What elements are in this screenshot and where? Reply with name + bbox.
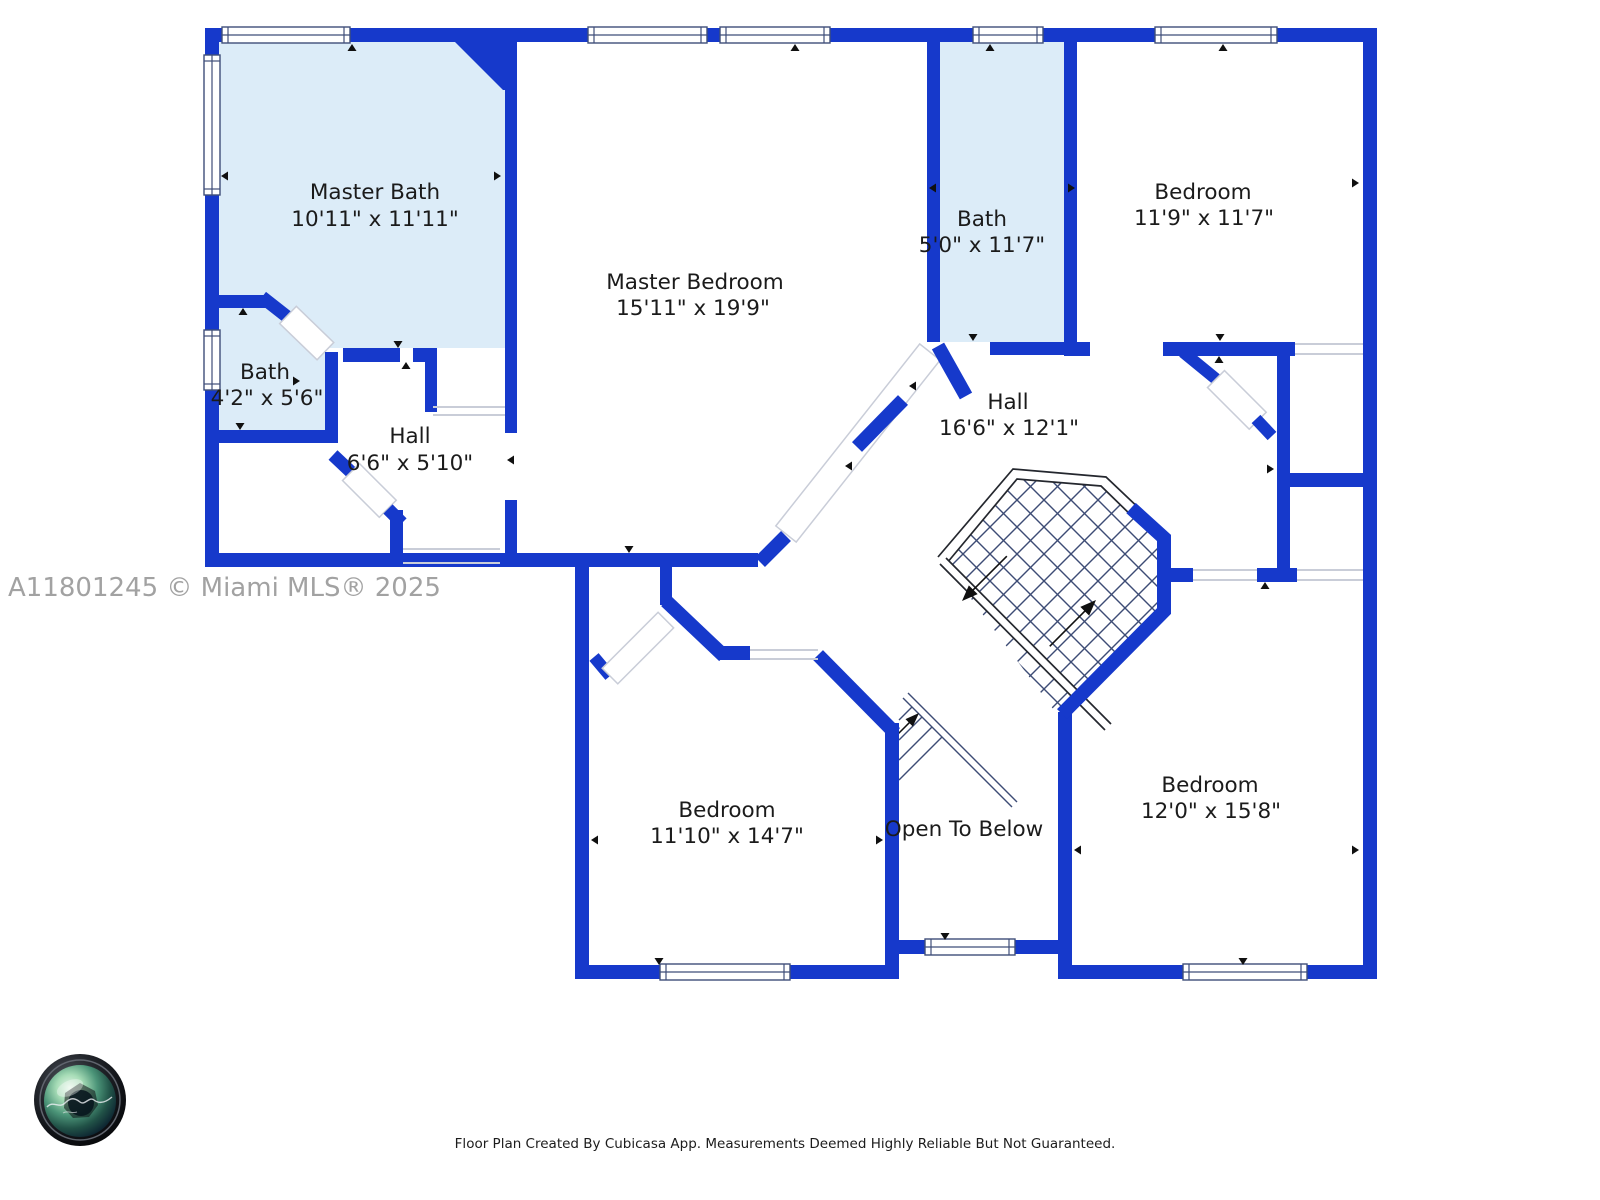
- room-label-bedroom-top-right: Bedroom: [1154, 180, 1251, 205]
- mls-watermark: A11801245 © Miami MLS® 2025: [8, 573, 441, 603]
- room-dims-bedroom-top-right: 11'9" x 11'7": [1134, 206, 1274, 231]
- photographer-logo: [34, 1054, 126, 1146]
- room-dims-bath-upper: 5'0" x 11'7": [919, 233, 1045, 258]
- window: [925, 939, 1015, 955]
- direction-marker: [1352, 846, 1359, 855]
- window: [204, 55, 220, 195]
- room-label-open-to-below: Open To Below: [885, 817, 1043, 842]
- direction-marker: [591, 836, 598, 845]
- direction-marker: [1215, 356, 1224, 363]
- direction-marker: [507, 456, 514, 465]
- window: [204, 330, 220, 390]
- room-dims-bedroom-bottom-left: 11'10" x 14'7": [650, 824, 804, 849]
- direction-marker: [1216, 334, 1225, 341]
- room-fill-bath-upper: [940, 42, 1064, 342]
- window: [1183, 964, 1307, 980]
- room-dims-hall-main: 16'6" x 12'1": [939, 416, 1079, 441]
- window: [720, 27, 830, 43]
- window: [588, 27, 707, 43]
- room-dims-bedroom-bottom-right: 12'0" x 15'8": [1141, 799, 1281, 824]
- stair-railing-outer: [938, 469, 1144, 557]
- direction-marker: [876, 836, 883, 845]
- window: [973, 27, 1043, 43]
- room-dims-master-bedroom: 15'11" x 19'9": [616, 296, 770, 321]
- room-label-master-bedroom: Master Bedroom: [606, 270, 784, 295]
- room-dims-bath-small: 4'2" x 5'6": [211, 386, 324, 411]
- direction-marker: [1074, 846, 1081, 855]
- room-label-hall-main: Hall: [987, 390, 1028, 415]
- footer-disclaimer: Floor Plan Created By Cubicasa App. Meas…: [455, 1136, 1116, 1152]
- direction-marker: [402, 362, 411, 369]
- floor-plan-canvas: Master Bath 10'11" x 11'11" Bath 4'2" x …: [0, 0, 1600, 1200]
- direction-marker: [625, 546, 634, 553]
- stair-flight-below: [899, 693, 1017, 807]
- window: [660, 964, 790, 980]
- direction-marker: [1352, 179, 1359, 188]
- room-label-bedroom-bottom-right: Bedroom: [1161, 773, 1258, 798]
- room-label-bedroom-bottom-left: Bedroom: [678, 798, 775, 823]
- room-label-bath-small: Bath: [240, 360, 290, 385]
- direction-marker: [1267, 465, 1274, 474]
- room-dims-master-bath: 10'11" x 11'11": [291, 207, 458, 232]
- direction-marker: [791, 44, 800, 51]
- direction-marker: [1261, 582, 1270, 589]
- window: [1155, 27, 1277, 43]
- room-label-hall-small: Hall: [389, 424, 430, 449]
- floor-plan-page: Master Bath 10'11" x 11'11" Bath 4'2" x …: [0, 0, 1600, 1200]
- door-swing-bedroom-bottom-left: [602, 612, 673, 683]
- room-label-bath-upper: Bath: [957, 207, 1007, 232]
- door-leaf-closet: [1183, 352, 1216, 379]
- room-dims-hall-small: 6'6" x 5'10": [347, 451, 473, 476]
- window: [222, 27, 350, 43]
- room-label-master-bath: Master Bath: [310, 180, 440, 205]
- direction-marker: [1219, 44, 1228, 51]
